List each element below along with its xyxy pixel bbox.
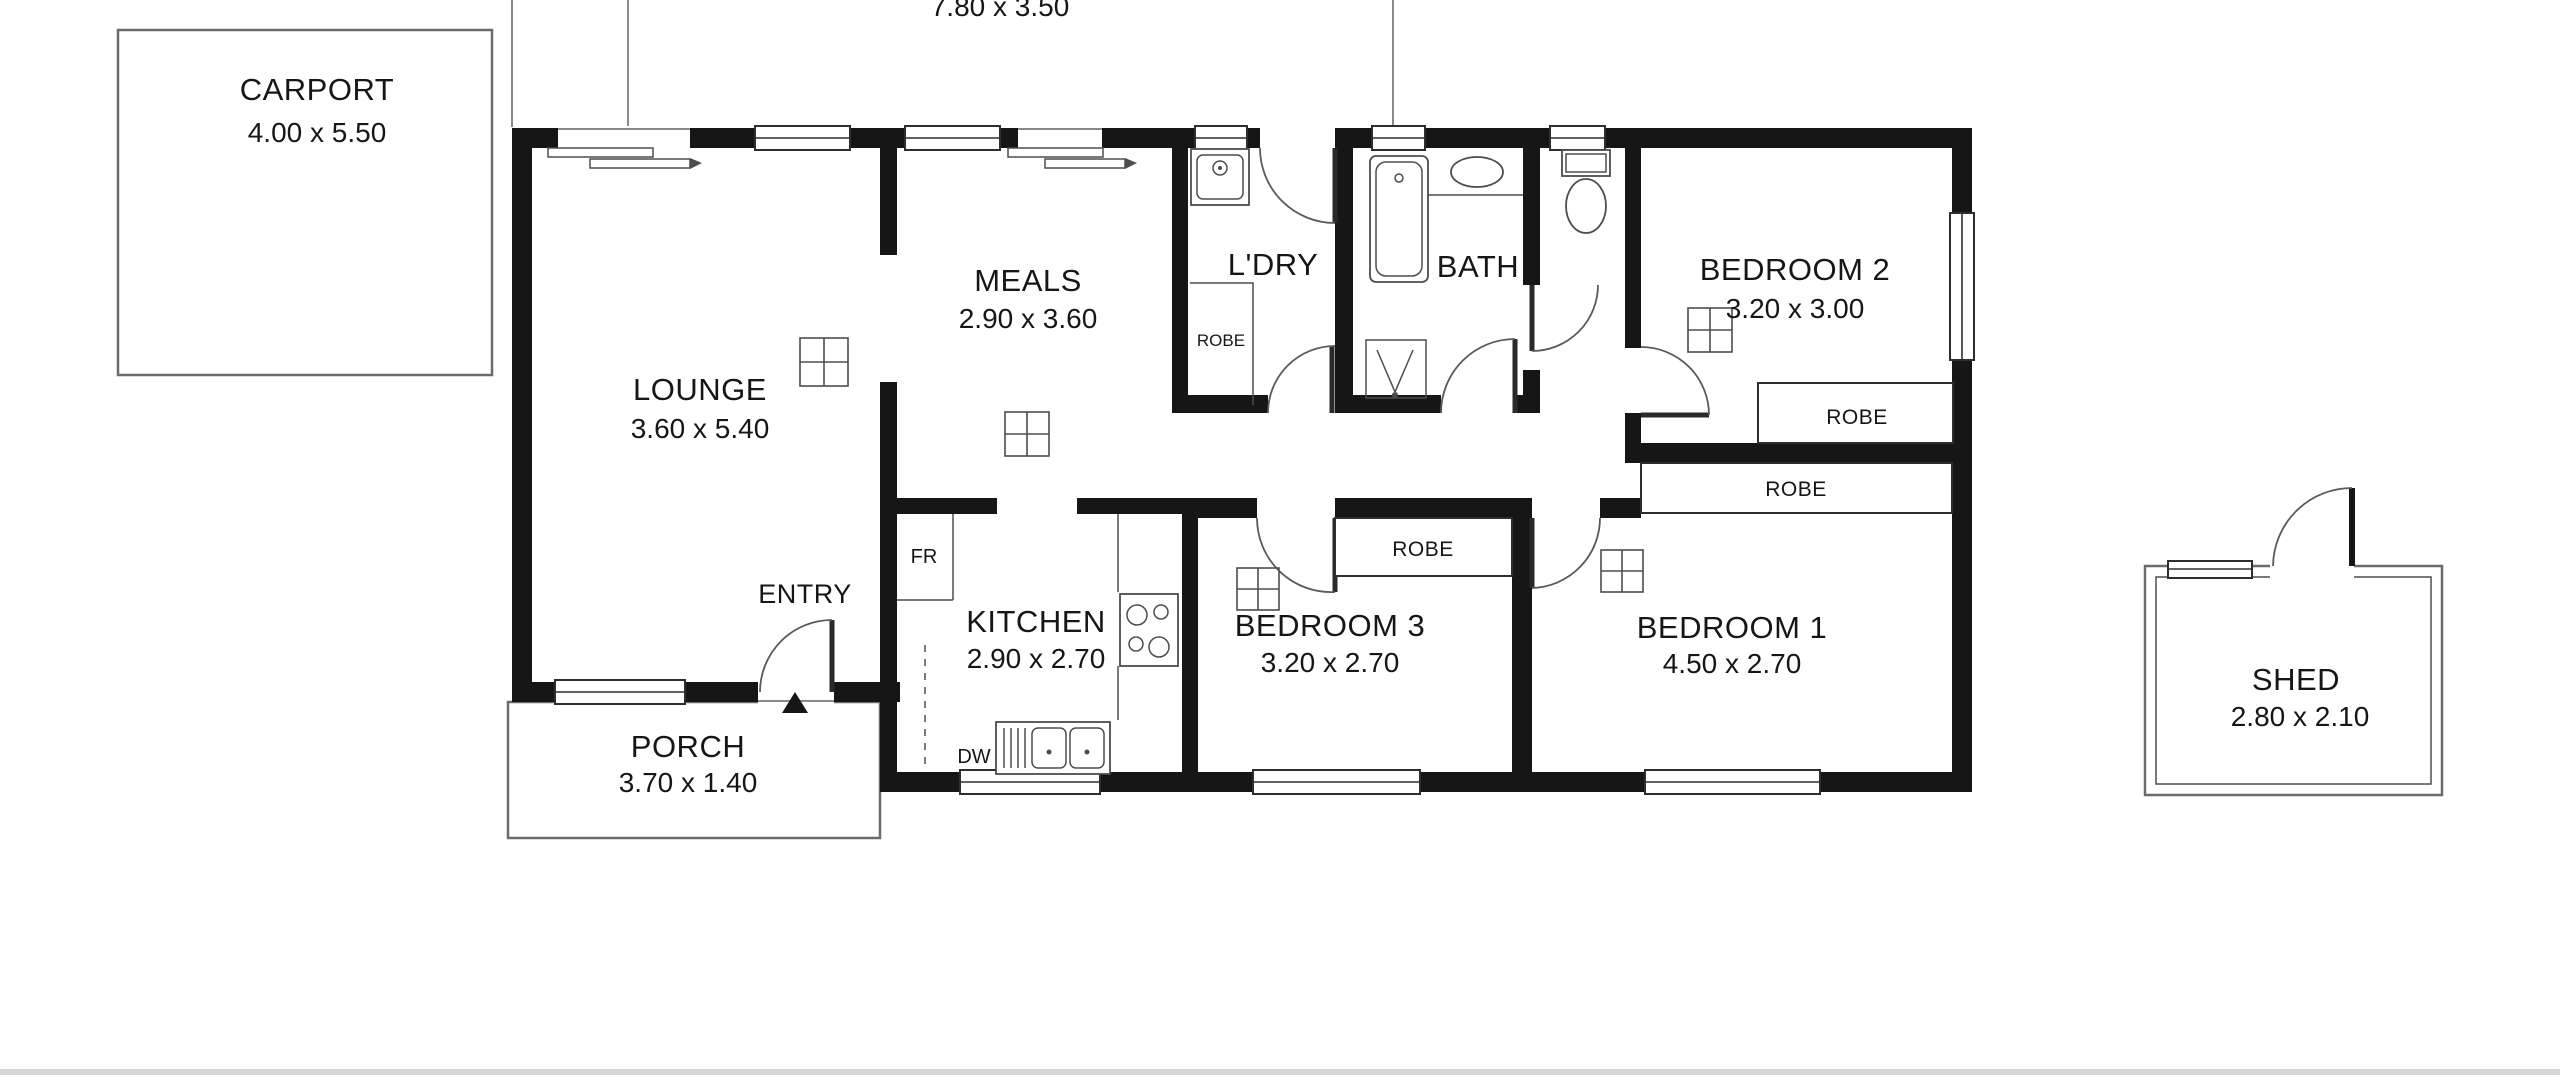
entry-label: ENTRY bbox=[758, 579, 852, 609]
lounge-label: LOUNGE bbox=[633, 372, 767, 407]
lounge-dims: 3.60 x 5.40 bbox=[631, 413, 770, 444]
meals-label: MEALS bbox=[974, 263, 1082, 298]
page-edge-line bbox=[0, 1069, 2560, 1075]
wc-door bbox=[1532, 285, 1598, 351]
shed: SHED 2.80 x 2.10 bbox=[2145, 488, 2442, 795]
wall-segment bbox=[1523, 370, 1540, 413]
bedroom1-door bbox=[1532, 518, 1600, 588]
ceiling-light-icon bbox=[1237, 568, 1279, 610]
toilet-icon bbox=[1562, 150, 1610, 233]
bathtub-icon bbox=[1370, 156, 1428, 282]
laundry-back-door bbox=[1260, 148, 1335, 223]
laundry-robe-label: ROBE bbox=[1197, 331, 1245, 350]
sliding-door-icons bbox=[548, 148, 1137, 169]
shed-dims: 2.80 x 2.10 bbox=[2231, 701, 2370, 732]
floor-plan-page: CARPORT 4.00 x 5.50 7.80 x 3.50 PORCH 3.… bbox=[0, 0, 2560, 1075]
meals-dims: 2.90 x 3.60 bbox=[959, 303, 1098, 334]
vanity-basin-icon bbox=[1428, 157, 1523, 195]
wall-segment bbox=[1335, 498, 1532, 518]
wall-segment bbox=[1198, 498, 1257, 518]
ceiling-light-icon bbox=[800, 338, 848, 386]
bedroom2-door bbox=[1641, 347, 1709, 415]
bedroom1-robe-label: ROBE bbox=[1765, 478, 1827, 501]
wall-segment bbox=[1625, 443, 1972, 463]
wall-segment bbox=[1512, 498, 1532, 772]
wall-segment bbox=[1335, 148, 1353, 413]
kitchen-dims: 2.90 x 2.70 bbox=[967, 643, 1106, 674]
wall-segment bbox=[1172, 148, 1188, 413]
wall-segment bbox=[897, 498, 997, 514]
dishwasher-label: DW bbox=[957, 746, 990, 768]
shed-door-arc bbox=[2273, 488, 2352, 566]
porch-label: PORCH bbox=[631, 729, 745, 764]
kitchen-sink-icon bbox=[996, 722, 1110, 774]
bath-label: BATH bbox=[1437, 249, 1519, 284]
porch: PORCH 3.70 x 1.40 bbox=[508, 702, 880, 838]
cooktop-icon bbox=[1120, 594, 1178, 666]
porch-dims: 3.70 x 1.40 bbox=[619, 767, 758, 798]
walls bbox=[512, 128, 1972, 792]
wall-segment bbox=[512, 128, 532, 702]
bedroom1-dims: 4.50 x 2.70 bbox=[1663, 648, 1802, 679]
kitchen-label: KITCHEN bbox=[966, 604, 1106, 639]
bedroom2-dims: 3.20 x 3.00 bbox=[1726, 293, 1865, 324]
sliding-panel-icon bbox=[1045, 159, 1125, 168]
verandah: 7.80 x 3.50 bbox=[512, 0, 1393, 127]
wall-segment bbox=[1523, 148, 1540, 285]
shed-label: SHED bbox=[2252, 662, 2340, 697]
bedroom3-door bbox=[1257, 518, 1335, 592]
shed-door-opening bbox=[2270, 558, 2354, 582]
sliding-panel-icon bbox=[590, 159, 690, 168]
slide-arrow-icon bbox=[1125, 158, 1137, 169]
wall-segment bbox=[1625, 148, 1641, 348]
floor-plan: CARPORT 4.00 x 5.50 7.80 x 3.50 PORCH 3.… bbox=[0, 0, 2560, 1075]
ceiling-light-icons bbox=[800, 308, 1732, 610]
wall-segment bbox=[1182, 498, 1198, 772]
bath-door bbox=[1441, 339, 1515, 413]
ceiling-light-icon bbox=[1005, 412, 1049, 456]
bedroom2-robe-label: ROBE bbox=[1826, 406, 1888, 429]
wall-segment bbox=[1077, 498, 1182, 514]
wall-segment bbox=[880, 148, 897, 255]
laundry-hall-door bbox=[1268, 346, 1335, 413]
back-door-opening bbox=[1260, 126, 1335, 150]
laundry-label: L'DRY bbox=[1228, 247, 1319, 282]
slide-arrow-icon bbox=[690, 158, 702, 169]
bedroom2-label: BEDROOM 2 bbox=[1700, 252, 1891, 287]
bedroom3-dims: 3.20 x 2.70 bbox=[1261, 647, 1400, 678]
ceiling-light-icon bbox=[1601, 550, 1643, 592]
verandah-dims: 7.80 x 3.50 bbox=[931, 0, 1070, 22]
fridge-label: FR bbox=[911, 546, 938, 568]
laundry-trough-icon bbox=[1191, 149, 1249, 205]
bedroom3-robe-label: ROBE bbox=[1392, 538, 1454, 561]
wall-segment bbox=[1188, 395, 1268, 413]
shower-icon bbox=[1366, 340, 1426, 398]
robes: ROBE ROBE ROBE ROBE bbox=[1190, 283, 1953, 576]
carport-label: CARPORT bbox=[240, 72, 395, 107]
carport: CARPORT 4.00 x 5.50 bbox=[118, 30, 492, 375]
carport-dims: 4.00 x 5.50 bbox=[248, 117, 387, 148]
bedroom3-label: BEDROOM 3 bbox=[1235, 608, 1426, 643]
wall-segment bbox=[1600, 498, 1641, 518]
bedroom1-label: BEDROOM 1 bbox=[1637, 610, 1828, 645]
wall-segment bbox=[880, 382, 897, 772]
